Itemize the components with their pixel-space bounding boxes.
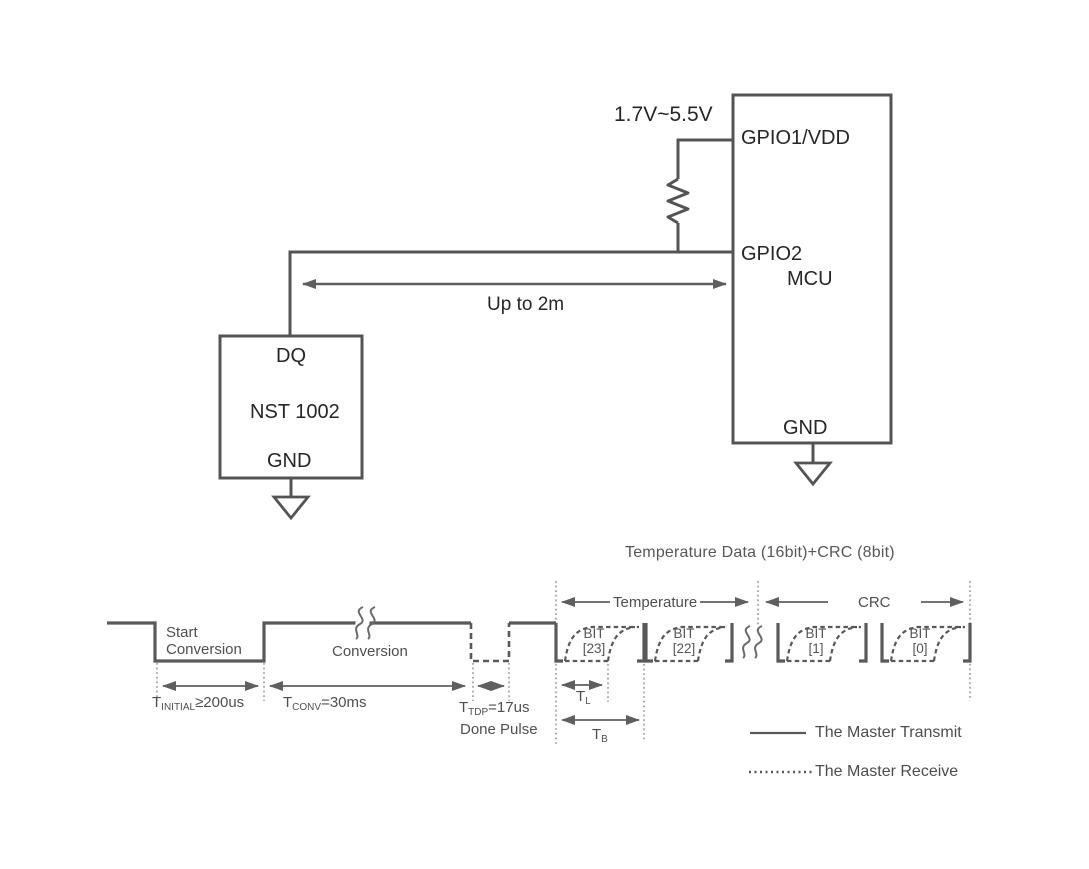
t-conv-value: =30ms	[321, 694, 366, 711]
vdd-wire	[678, 140, 733, 179]
diagram-page: 1.7V~5.5V GPIO1/VDD GPIO2 MCU GND DQ NST…	[0, 0, 1089, 869]
mcu-pin-gnd: GND	[783, 417, 827, 440]
t-conv-subscript: CONV	[292, 702, 321, 713]
cable-length-label: Up to 2m	[487, 294, 564, 316]
supply-voltage-label: 1.7V~5.5V	[614, 103, 713, 127]
t-conv-symbol: T	[283, 694, 292, 711]
sensor-pin-dq: DQ	[276, 345, 306, 368]
resistor-icon	[668, 179, 688, 223]
mcu-pin-gpio2: GPIO2	[741, 243, 802, 266]
bit-1-text: BIT	[781, 626, 851, 641]
bit-22-index: [22]	[649, 641, 719, 656]
t-initial-subscript: INITIAL	[161, 702, 195, 713]
t-l-subscript: L	[585, 696, 591, 707]
bit-0-text: BIT	[885, 626, 955, 641]
t-tdp-symbol: T	[459, 699, 468, 716]
t-tdp-value: =17us	[488, 699, 529, 716]
sensor-pin-gnd: GND	[267, 450, 311, 473]
mcu-name-label: MCU	[787, 268, 833, 291]
t-l-symbol: T	[576, 688, 585, 705]
t-initial-label: TINITIAL≥200us	[152, 694, 244, 713]
bit-22-label: BIT [22]	[649, 626, 719, 656]
t-l-label: TL	[576, 688, 591, 707]
timing-title: Temperature Data (16bit)+CRC (8bit)	[625, 544, 895, 562]
sensor-name-label: NST 1002	[250, 401, 340, 424]
t-conv-label: TCONV=30ms	[283, 694, 367, 713]
t-initial-value: ≥200us	[195, 694, 244, 711]
t-b-subscript: B	[601, 734, 608, 745]
bit-23-text: BIT	[559, 626, 629, 641]
t-tdp-subscript: TDP	[468, 707, 488, 718]
conversion-label: Conversion	[332, 643, 408, 660]
t-tdp-label: TTDP=17us	[459, 699, 529, 718]
sensor-ground-icon	[274, 478, 308, 518]
t-b-label: TB	[592, 726, 608, 745]
break-squiggle-bits	[739, 625, 762, 659]
crc-section-label: CRC	[828, 594, 921, 611]
done-pulse-wave	[471, 623, 509, 661]
t-b-symbol: T	[592, 726, 601, 743]
temperature-section-label: Temperature	[610, 594, 700, 611]
legend-master-receive: The Master Receive	[815, 763, 958, 781]
bit-22-text: BIT	[649, 626, 719, 641]
bit-23-index: [23]	[559, 641, 629, 656]
mcu-ground-icon	[796, 443, 830, 484]
mcu-pin-gpio1-vdd: GPIO1/VDD	[741, 127, 850, 150]
bit-1-index: [1]	[781, 641, 851, 656]
bit-1-label: BIT [1]	[781, 626, 851, 656]
bit-23-label: BIT [23]	[559, 626, 629, 656]
t-initial-symbol: T	[152, 694, 161, 711]
legend-master-transmit: The Master Transmit	[815, 724, 962, 742]
bit-0-index: [0]	[885, 641, 955, 656]
done-pulse-label: Done Pulse	[460, 721, 538, 738]
start-conversion-label-line1: Start	[166, 624, 198, 641]
bit-0-label: BIT [0]	[885, 626, 955, 656]
start-conversion-label-line2: Conversion	[166, 641, 242, 658]
